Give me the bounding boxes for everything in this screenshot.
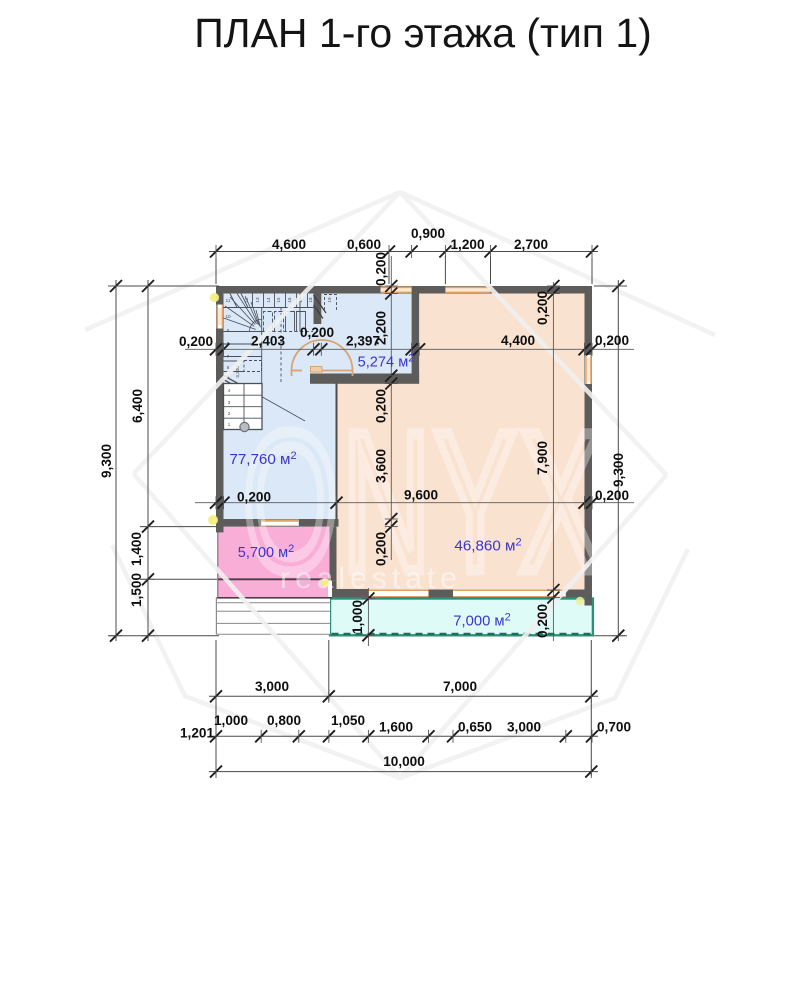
svg-text:1,201: 1,201 bbox=[180, 726, 214, 741]
svg-text:0,650: 0,650 bbox=[458, 720, 492, 735]
svg-text:19: 19 bbox=[327, 297, 332, 303]
svg-text:7,000 м2: 7,000 м2 bbox=[453, 612, 510, 630]
svg-text:1,600: 1,600 bbox=[379, 720, 413, 735]
svg-text:1,000: 1,000 bbox=[350, 600, 365, 634]
svg-text:4: 4 bbox=[228, 388, 231, 393]
svg-text:1,500: 1,500 bbox=[129, 573, 144, 607]
svg-text:5,700 м2: 5,700 м2 bbox=[238, 543, 294, 561]
svg-text:1: 1 bbox=[228, 422, 231, 427]
svg-text:0,200: 0,200 bbox=[300, 325, 334, 340]
svg-text:5,274 м2: 5,274 м2 bbox=[358, 353, 415, 371]
svg-text:14: 14 bbox=[266, 297, 271, 303]
svg-text:6,400: 6,400 bbox=[130, 389, 145, 423]
svg-text:0,200: 0,200 bbox=[535, 604, 550, 638]
svg-text:0,200: 0,200 bbox=[179, 334, 213, 349]
svg-text:3: 3 bbox=[228, 400, 231, 405]
svg-text:2,700: 2,700 bbox=[514, 237, 548, 252]
svg-text:16: 16 bbox=[287, 297, 292, 303]
svg-text:0,900: 0,900 bbox=[411, 226, 445, 241]
svg-text:0,200: 0,200 bbox=[374, 532, 389, 566]
svg-text:0,200: 0,200 bbox=[237, 490, 271, 505]
svg-text:77,760 м2: 77,760 м2 bbox=[229, 450, 296, 468]
svg-text:3,600: 3,600 bbox=[374, 449, 389, 483]
svg-text:0,700: 0,700 bbox=[597, 720, 631, 735]
svg-text:2,403: 2,403 bbox=[251, 334, 285, 349]
svg-text:0,200: 0,200 bbox=[374, 252, 389, 286]
svg-text:ПЛАН 1-го этажа (тип 1): ПЛАН 1-го этажа (тип 1) bbox=[194, 10, 652, 56]
svg-text:1,200: 1,200 bbox=[450, 237, 484, 252]
svg-text:10,000: 10,000 bbox=[383, 754, 425, 769]
svg-text:3,000: 3,000 bbox=[507, 720, 541, 735]
svg-text:1,400: 1,400 bbox=[129, 532, 144, 566]
svg-text:7,000: 7,000 bbox=[443, 679, 477, 694]
svg-text:11: 11 bbox=[226, 298, 231, 303]
svg-text:15: 15 bbox=[276, 297, 281, 303]
svg-text:9,600: 9,600 bbox=[404, 488, 438, 503]
svg-text:0,800: 0,800 bbox=[267, 713, 301, 728]
svg-text:2,397: 2,397 bbox=[346, 334, 380, 349]
svg-text:9,300: 9,300 bbox=[611, 453, 626, 487]
svg-text:9: 9 bbox=[227, 328, 230, 333]
svg-text:7: 7 bbox=[227, 354, 230, 359]
svg-text:2: 2 bbox=[228, 411, 231, 416]
svg-text:13: 13 bbox=[255, 297, 260, 303]
svg-text:4,400: 4,400 bbox=[501, 333, 535, 348]
svg-text:0,200: 0,200 bbox=[374, 389, 389, 423]
svg-text:10: 10 bbox=[225, 314, 231, 319]
svg-text:4,600: 4,600 bbox=[272, 237, 306, 252]
svg-text:7,900: 7,900 bbox=[535, 441, 550, 475]
svg-text:0,200: 0,200 bbox=[595, 488, 629, 503]
svg-text:0,600: 0,600 bbox=[347, 237, 381, 252]
svg-text:12: 12 bbox=[244, 297, 249, 303]
svg-text:1,000: 1,000 bbox=[214, 713, 248, 728]
svg-text:0,200: 0,200 bbox=[535, 291, 550, 325]
svg-text:46,860 м2: 46,860 м2 bbox=[454, 537, 521, 555]
svg-text:1,050: 1,050 bbox=[331, 713, 365, 728]
svg-text:3,000: 3,000 bbox=[255, 679, 289, 694]
svg-text:realestate: realestate bbox=[280, 562, 462, 595]
svg-text:18: 18 bbox=[308, 297, 313, 303]
svg-text:9,300: 9,300 bbox=[99, 444, 114, 478]
svg-text:0,200: 0,200 bbox=[595, 333, 629, 348]
